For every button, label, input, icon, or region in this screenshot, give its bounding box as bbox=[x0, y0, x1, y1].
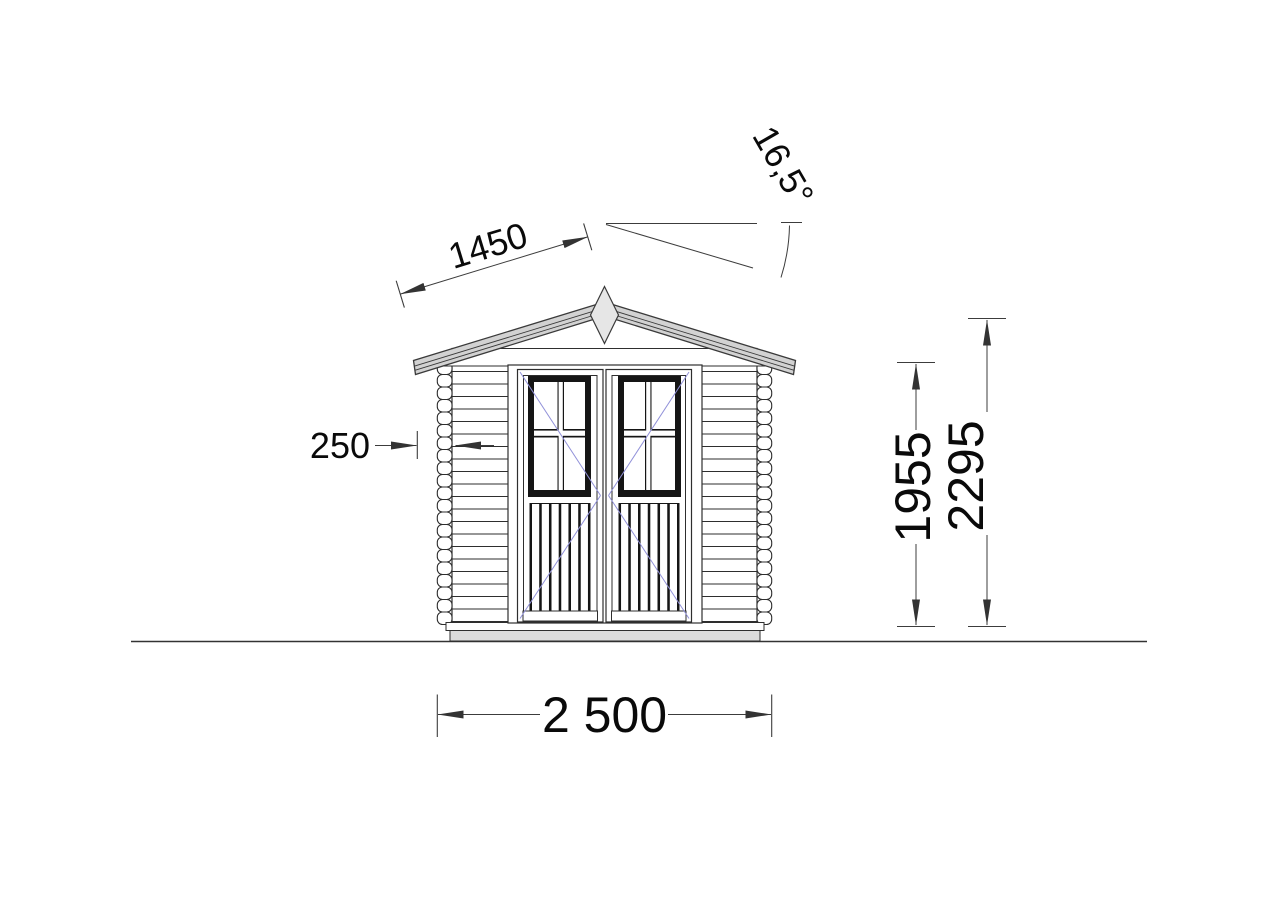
log-end bbox=[437, 412, 452, 425]
log-end bbox=[437, 387, 452, 400]
dim-wall-height-label: 1955 bbox=[885, 431, 941, 542]
log-end bbox=[757, 462, 772, 475]
log-end bbox=[437, 500, 452, 513]
log-end bbox=[437, 550, 452, 563]
log-end bbox=[437, 400, 452, 413]
log-end bbox=[437, 512, 452, 525]
log-end bbox=[757, 562, 772, 575]
log-end bbox=[757, 587, 772, 600]
log-end bbox=[437, 562, 452, 575]
log-end bbox=[757, 550, 772, 563]
log-end bbox=[757, 512, 772, 525]
log-end bbox=[437, 375, 452, 388]
log-end bbox=[757, 487, 772, 500]
log-end bbox=[757, 437, 772, 450]
dim-slope-length: 1450 bbox=[388, 197, 592, 307]
log-end bbox=[757, 500, 772, 513]
log-end bbox=[757, 412, 772, 425]
log-end bbox=[757, 375, 772, 388]
log-end bbox=[757, 475, 772, 488]
log-end bbox=[757, 537, 772, 550]
log-end bbox=[437, 487, 452, 500]
foundation-strip bbox=[450, 631, 760, 642]
log-end bbox=[437, 475, 452, 488]
dim-total-width: 2 500 bbox=[437, 687, 771, 743]
shed-front-elevation-drawing: 1450 16,5° 250 1955 2295 bbox=[0, 0, 1276, 903]
dim-ridge-height: 2295 bbox=[938, 319, 1006, 627]
dim-total-width-label: 2 500 bbox=[542, 687, 667, 743]
door-bottom-rail bbox=[523, 611, 598, 621]
dim-roof-angle: 16,5° bbox=[606, 119, 822, 278]
log-end bbox=[757, 525, 772, 538]
log-end bbox=[757, 400, 772, 413]
log-end bbox=[437, 425, 452, 438]
log-end bbox=[757, 450, 772, 463]
left-wall-log-lines bbox=[452, 372, 508, 622]
dim-overhang-label: 250 bbox=[310, 425, 370, 466]
door-leaf-left bbox=[518, 370, 604, 623]
log-end bbox=[437, 437, 452, 450]
threshold bbox=[446, 623, 764, 631]
log-end bbox=[757, 575, 772, 588]
log-end bbox=[437, 537, 452, 550]
log-end bbox=[437, 525, 452, 538]
log-end bbox=[437, 600, 452, 613]
dim-roof-angle-label: 16,5° bbox=[745, 119, 823, 213]
left-corner-log-ends bbox=[437, 362, 452, 625]
double-door bbox=[508, 365, 702, 623]
log-end bbox=[437, 462, 452, 475]
door-leaf-right bbox=[606, 370, 692, 623]
dim-wall-height: 1955 bbox=[885, 363, 941, 627]
right-corner-log-ends bbox=[757, 362, 772, 625]
dim-ridge-height-label: 2295 bbox=[938, 420, 994, 531]
right-wall-log-lines bbox=[703, 372, 758, 622]
log-end bbox=[437, 450, 452, 463]
log-end bbox=[437, 575, 452, 588]
log-end bbox=[757, 600, 772, 613]
log-end bbox=[437, 587, 452, 600]
log-end bbox=[757, 387, 772, 400]
log-end bbox=[757, 425, 772, 438]
